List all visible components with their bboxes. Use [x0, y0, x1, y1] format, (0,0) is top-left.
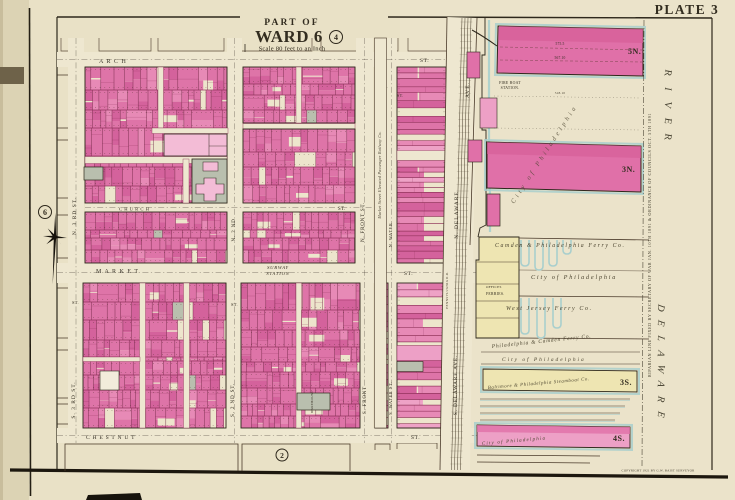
svg-text:S. 2 ND ST.: S. 2 ND ST.	[230, 383, 236, 417]
svg-text:M A R K E T: M A R K E T	[96, 269, 139, 275]
svg-text:N. FRONT ST.: N. FRONT ST.	[361, 202, 366, 242]
svg-text:WARD 6: WARD 6	[255, 27, 323, 46]
svg-text:5N.: 5N.	[628, 47, 641, 56]
svg-text:N. 2 ND: N. 2 ND	[231, 218, 237, 241]
svg-text:FIRE BOAT: FIRE BOAT	[499, 81, 521, 85]
svg-text:STATION.: STATION.	[501, 86, 520, 90]
svg-text:4: 4	[334, 33, 338, 42]
svg-text:WAREHOUSE: WAREHOUSE	[310, 391, 314, 413]
svg-text:4S.: 4S.	[613, 434, 625, 443]
svg-text:SUBWAY: SUBWAY	[267, 265, 289, 270]
svg-text:N. WATER: N. WATER	[388, 223, 393, 248]
svg-text:OFFICES: OFFICES	[486, 285, 502, 289]
svg-text:N. DELAWARE: N. DELAWARE	[454, 191, 460, 239]
svg-text:ST.: ST.	[72, 300, 79, 305]
svg-text:STATION: STATION	[266, 271, 289, 276]
svg-text:Market Street Elevated Passeng: Market Street Elevated Passenger Railway…	[377, 131, 382, 220]
svg-text:City of Philadelphia: City of Philadelphia	[502, 356, 586, 363]
svg-text:PENNSYLVANIA R.R.: PENNSYLVANIA R.R.	[445, 271, 449, 308]
svg-text:PLATE 3: PLATE 3	[655, 2, 720, 17]
svg-text:AVE.: AVE.	[465, 82, 471, 98]
svg-text:N. 3 RD ST.: N. 3 RD ST.	[72, 197, 78, 235]
svg-text:Scale 80 feet to an Inch: Scale 80 feet to an Inch	[259, 46, 326, 53]
svg-text:C H U R C H: C H U R C H	[119, 207, 150, 212]
svg-text:S. WATER ST.: S. WATER ST.	[388, 381, 393, 414]
svg-text:West Jersey Ferry Co.: West Jersey Ferry Co.	[506, 306, 593, 312]
svg-text:S. DELAWARE AVE.: S. DELAWARE AVE.	[453, 355, 459, 415]
svg-text:Camden & Philadelphia Ferry Co: Camden & Philadelphia Ferry Co.	[495, 243, 626, 249]
svg-text:City of Philadelphia: City of Philadelphia	[531, 274, 617, 281]
svg-text:3N.: 3N.	[622, 165, 635, 174]
svg-text:ST.: ST.	[420, 58, 429, 64]
svg-text:S. 3 RD ST.: S. 3 RD ST.	[71, 381, 77, 418]
svg-text:ST.: ST.	[411, 435, 420, 441]
svg-text:2: 2	[280, 451, 284, 460]
svg-text:ST.: ST.	[404, 271, 413, 277]
svg-text:RIPARIAN LINE FIXED BY SECRETA: RIPARIAN LINE FIXED BY SECRETARY OF WAR …	[647, 113, 652, 377]
svg-text:A R C H: A R C H	[99, 59, 127, 65]
svg-text:518.10: 518.10	[555, 91, 566, 95]
svg-text:COPYRIGHT 1921 BY G.W. BAIST S: COPYRIGHT 1921 BY G.W. BAIST SURVEYOR	[622, 469, 696, 473]
svg-text:567.10: 567.10	[554, 56, 565, 60]
svg-text:ST.: ST.	[397, 93, 404, 98]
svg-text:3S.: 3S.	[620, 378, 632, 387]
svg-text:ST.: ST.	[231, 302, 238, 307]
svg-text:ST.: ST.	[338, 207, 346, 212]
svg-text:C H E S T N U T: C H E S T N U T	[86, 435, 135, 441]
svg-text:6: 6	[43, 208, 47, 217]
svg-text:S. FRONT: S. FRONT	[363, 386, 368, 414]
svg-text:FERRIES.: FERRIES.	[486, 292, 505, 296]
svg-text:575.5: 575.5	[555, 42, 564, 46]
